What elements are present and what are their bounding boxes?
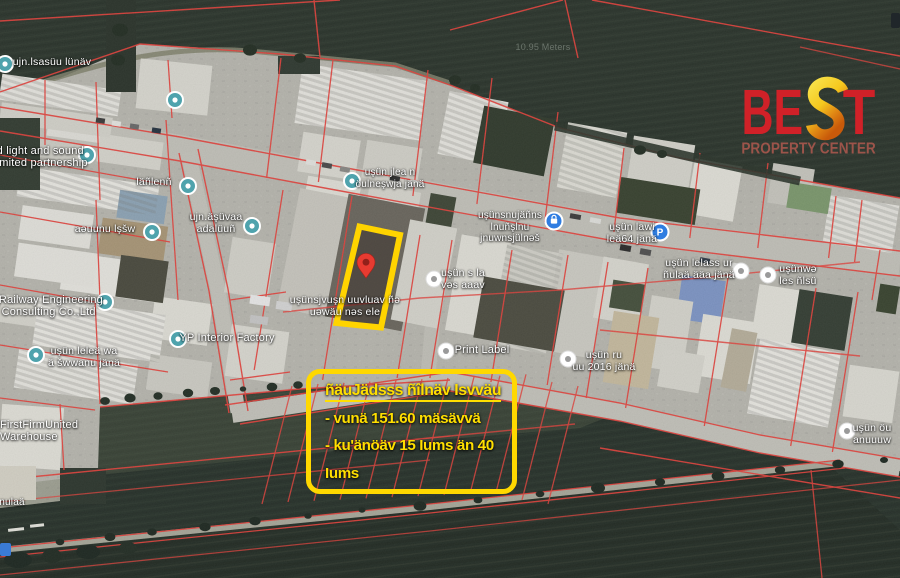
svg-text:P: P — [657, 228, 664, 239]
svg-text:PROPERTY CENTER: PROPERTY CENTER — [741, 141, 876, 158]
svg-text:T: T — [843, 76, 876, 148]
svg-text:BE: BE — [742, 76, 804, 148]
